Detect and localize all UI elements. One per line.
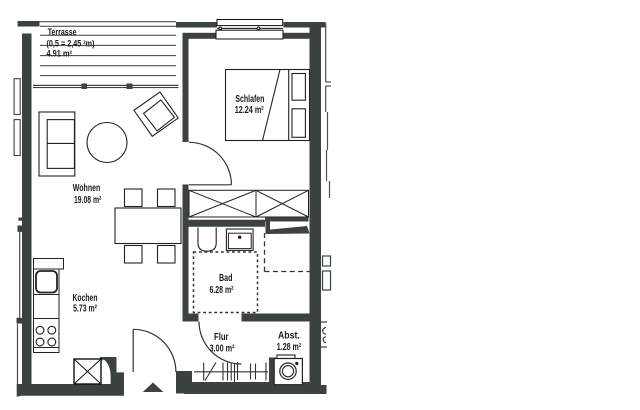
- svg-text:Terrasse: Terrasse: [48, 27, 77, 37]
- svg-text:(0,5 = 2,45 ²m): (0,5 = 2,45 ²m): [47, 39, 95, 49]
- svg-text:6.28 m²: 6.28 m²: [210, 285, 234, 296]
- svg-text:Flur: Flur: [214, 332, 229, 343]
- svg-text:3.00 m²: 3.00 m²: [210, 344, 235, 355]
- svg-text:Wohnen: Wohnen: [73, 183, 101, 194]
- svg-text:5.73 m²: 5.73 m²: [73, 304, 97, 315]
- svg-text:Schlafen: Schlafen: [235, 94, 264, 105]
- svg-text:4.91 m²: 4.91 m²: [47, 49, 73, 59]
- svg-text:Bad: Bad: [219, 273, 233, 284]
- svg-text:19.08 m²: 19.08 m²: [74, 195, 102, 206]
- svg-text:1.28 m²: 1.28 m²: [277, 342, 302, 353]
- svg-text:12.24 m²: 12.24 m²: [235, 105, 264, 116]
- svg-text:Kochen: Kochen: [73, 293, 98, 304]
- svg-text:Abst.: Abst.: [278, 331, 300, 342]
